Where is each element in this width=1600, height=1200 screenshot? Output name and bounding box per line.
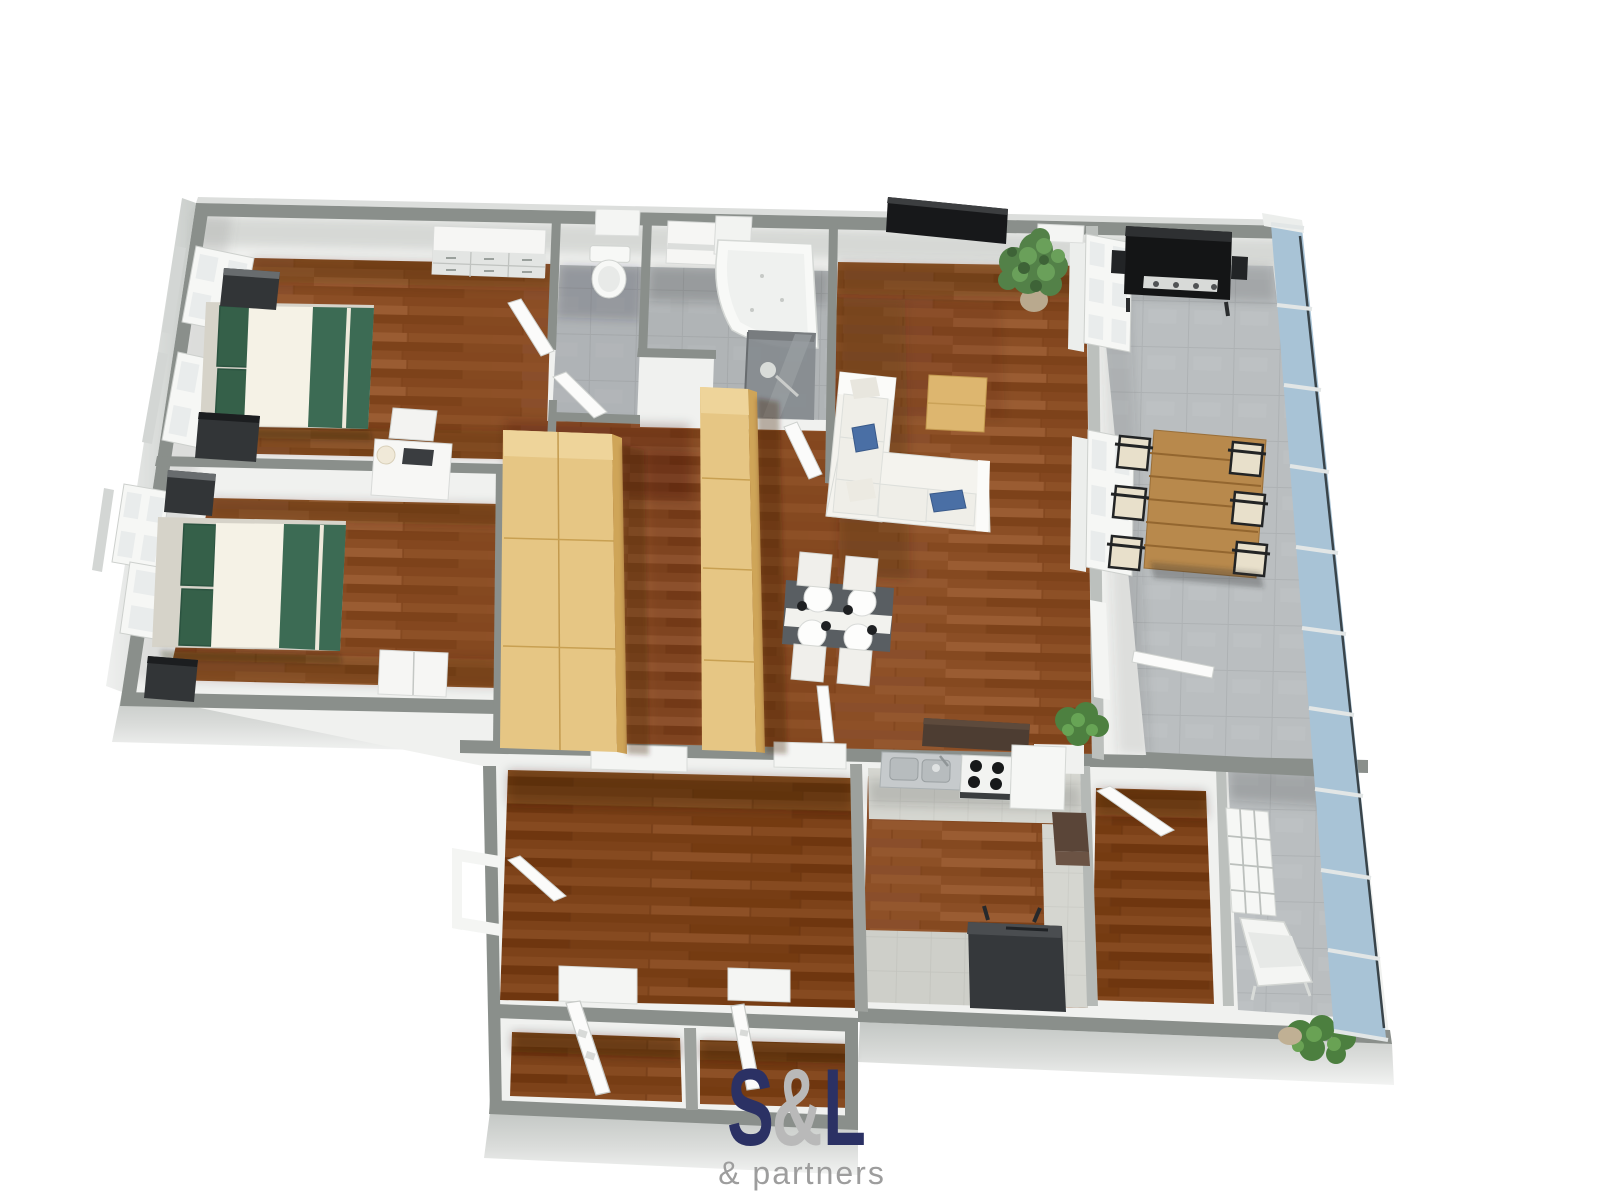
svg-text:L: L [823,1045,866,1169]
svg-text:&: & [772,1045,823,1169]
svg-text:& partners: & partners [718,1155,886,1191]
svg-text:S: S [727,1045,774,1169]
